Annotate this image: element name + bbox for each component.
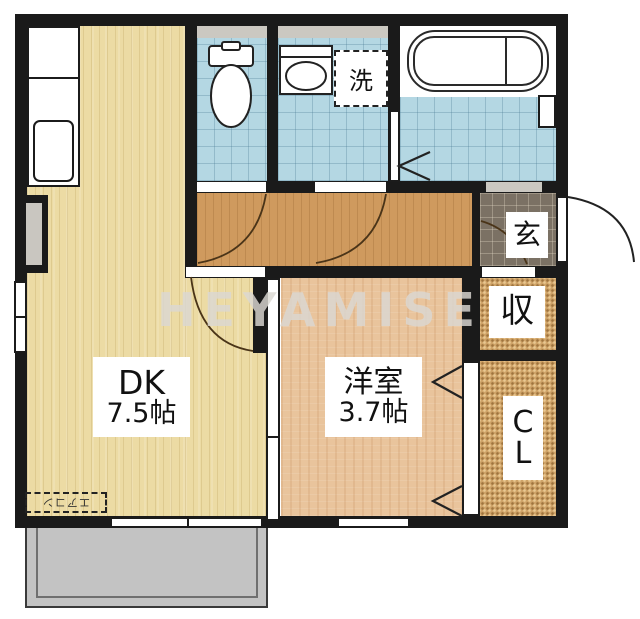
closet-label-l: L [503,438,543,470]
aircon-box: エアコン [25,492,107,513]
aircon-label: エアコン [42,495,90,511]
wall-toilet-washroom [267,26,278,193]
dk-name: DK [93,366,190,401]
wall-right [556,14,568,528]
dk-size: 7.5帖 [93,400,190,428]
floor-plan: DK 7.5帖 洋室 3.7帖 玄 収 C L 洗 エアコン HEYAMISE [0,0,640,619]
laundry-box: 洗 [334,50,388,107]
bathroom-window [538,95,556,128]
wall-top [15,14,568,26]
western-name: 洋室 [325,367,422,399]
bathtub-icon [408,31,548,91]
closet-bifold-strip [462,361,480,516]
wall-storage-closet [462,350,556,361]
storage-opening [482,267,535,277]
laundry-label: 洗 [349,61,373,96]
dk-balcony-window-divider [187,518,189,527]
bathroom-floor [400,97,556,181]
wall-dk-toilet [185,26,197,266]
kitchen-counter-divider [29,77,78,79]
watermark: HEYAMISE [0,283,640,337]
room-dk-label: DK 7.5帖 [93,357,190,437]
toilet-room-floor [197,38,267,181]
wall-entrance-left [472,193,480,278]
entrance-label-text: 玄 [506,220,548,249]
balcony-inner-rail [36,522,258,598]
dk-western-sliding-door-divider [267,436,279,438]
toilet-lintel [197,26,267,38]
closet-label: C L [503,396,543,480]
entrance-lintel [486,182,542,192]
bathroom-door-strip [389,110,400,182]
closet-label-c: C [503,407,543,439]
washroom-lintel [278,26,388,38]
washroom-doorway [315,182,386,192]
room-western-label: 洋室 3.7帖 [325,357,422,437]
front-door-leaf [556,196,568,263]
western-size: 3.7帖 [325,399,422,427]
dk-doorway [186,267,265,277]
kitchen-sink [33,120,74,182]
wall-bottom [15,516,568,528]
toilet-doorway [197,182,266,192]
pipe-space-panel [26,203,42,265]
front-door-arc [568,197,634,262]
entrance-label: 玄 [506,212,548,258]
hallway-floor [197,193,473,266]
western-window [337,517,410,528]
